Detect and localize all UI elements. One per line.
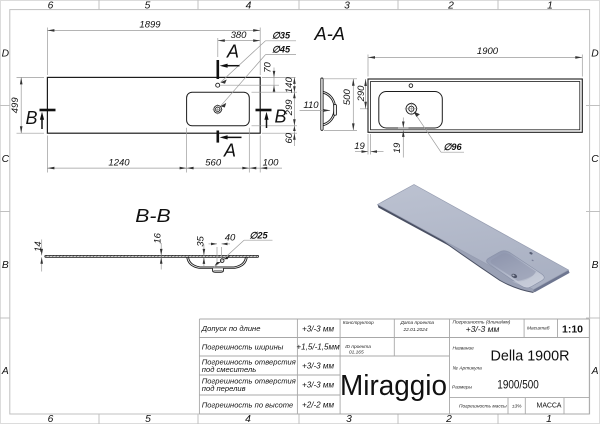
svg-text:380: 380 <box>231 30 248 41</box>
svg-text:Della 1900R: Della 1900R <box>491 348 570 365</box>
svg-text:C: C <box>2 154 10 165</box>
svg-text:6: 6 <box>48 414 54 424</box>
svg-text:499: 499 <box>10 97 21 114</box>
svg-text:Miraggio: Miraggio <box>340 370 447 402</box>
svg-text:1:10: 1:10 <box>562 323 583 335</box>
svg-text:±3%: ±3% <box>512 404 522 410</box>
svg-text:∅35: ∅35 <box>272 31 291 41</box>
svg-text:Масштаб: Масштаб <box>527 326 550 332</box>
svg-text:01.165: 01.165 <box>349 350 364 356</box>
svg-text:A-A: A-A <box>313 24 345 44</box>
svg-text:+3/-3 мм: +3/-3 мм <box>302 324 334 333</box>
svg-text:A: A <box>1 366 9 377</box>
svg-text:Погрешность массы: Погрешность массы <box>459 404 507 410</box>
svg-text:Конструктор: Конструктор <box>343 320 374 326</box>
svg-text:6: 6 <box>48 1 54 12</box>
svg-text:C: C <box>591 154 599 165</box>
svg-text:22.01.2024: 22.01.2024 <box>402 327 427 333</box>
svg-text:60: 60 <box>284 132 295 143</box>
svg-text:2: 2 <box>447 1 454 12</box>
svg-text:500: 500 <box>342 89 353 106</box>
svg-text:+3/-3 мм: +3/-3 мм <box>302 381 334 390</box>
svg-text:МАССА: МАССА <box>537 402 562 409</box>
svg-text:1240: 1240 <box>108 157 130 168</box>
svg-text:3: 3 <box>346 414 352 424</box>
svg-text:A: A <box>591 366 599 377</box>
svg-text:∅45: ∅45 <box>272 44 291 54</box>
svg-text:290: 290 <box>356 85 367 103</box>
svg-text:A: A <box>226 42 239 62</box>
svg-text:2: 2 <box>445 414 452 424</box>
svg-text:Погрешность по высоте: Погрешность по высоте <box>202 400 293 409</box>
svg-text:110: 110 <box>303 100 319 111</box>
svg-text:+3/-3 мм: +3/-3 мм <box>302 361 334 370</box>
svg-text:D: D <box>591 48 599 59</box>
svg-text:5: 5 <box>145 1 151 12</box>
svg-text:Название: Название <box>453 346 475 352</box>
svg-text:D: D <box>2 48 10 59</box>
svg-text:35: 35 <box>195 236 206 247</box>
svg-text:B: B <box>25 108 37 128</box>
svg-text:4: 4 <box>246 1 252 12</box>
svg-text:1899: 1899 <box>139 20 161 31</box>
svg-text:1: 1 <box>546 414 552 424</box>
svg-text:№ Артикула: № Артикула <box>453 366 482 372</box>
svg-text:16: 16 <box>153 232 164 243</box>
svg-text:Погрешность ширины: Погрешность ширины <box>202 342 284 351</box>
svg-text:под смеситель: под смеситель <box>202 365 256 374</box>
svg-text:Дата проекта: Дата проекта <box>400 320 435 326</box>
svg-text:B: B <box>592 260 599 271</box>
svg-text:70: 70 <box>263 62 274 73</box>
svg-text:ID проекта: ID проекта <box>345 344 371 350</box>
svg-text:B: B <box>2 260 9 271</box>
svg-text:19: 19 <box>354 141 365 152</box>
svg-text:14: 14 <box>33 241 44 252</box>
svg-text:∅25: ∅25 <box>249 231 268 241</box>
svg-text:3: 3 <box>344 1 350 12</box>
svg-text:Размеры: Размеры <box>452 385 473 391</box>
svg-text:1: 1 <box>547 1 553 12</box>
svg-text:под перелив: под перелив <box>202 384 246 393</box>
svg-text:4: 4 <box>245 414 251 424</box>
svg-text:19: 19 <box>392 142 403 153</box>
svg-text:100: 100 <box>263 157 280 168</box>
svg-text:560: 560 <box>205 157 222 168</box>
svg-text:40: 40 <box>225 233 236 244</box>
svg-text:1900/500: 1900/500 <box>497 378 539 392</box>
svg-text:+2/-2 мм: +2/-2 мм <box>302 401 334 410</box>
svg-text:A: A <box>223 141 236 161</box>
svg-text:140: 140 <box>284 77 295 94</box>
svg-text:Допуск по длине: Допуск по длине <box>201 324 261 333</box>
svg-text:∅96: ∅96 <box>443 142 462 152</box>
svg-text:+3/-3 мм: +3/-3 мм <box>466 324 500 334</box>
svg-text:B-B: B-B <box>135 206 170 226</box>
svg-text:+1,5/-1,5мм: +1,5/-1,5мм <box>296 343 340 352</box>
svg-text:1900: 1900 <box>477 46 499 57</box>
svg-text:B: B <box>274 107 286 127</box>
svg-text:5: 5 <box>145 414 151 424</box>
